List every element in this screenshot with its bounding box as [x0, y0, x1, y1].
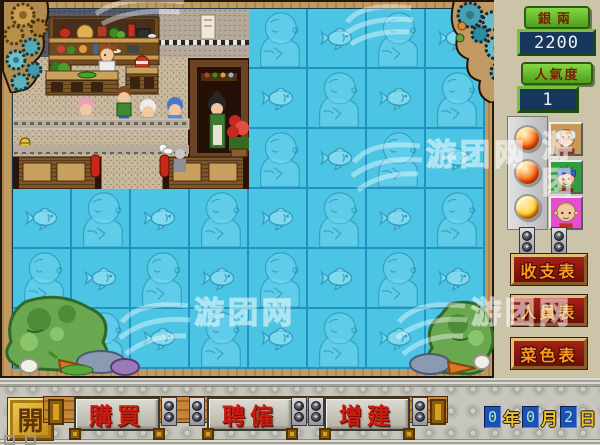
tile-grid — [12, 8, 484, 368]
map-tile-r5c2[interactable] — [72, 249, 131, 309]
map-frame — [0, 0, 494, 378]
popularity-value: 1 — [517, 86, 579, 113]
buy-button-label: 購買 — [89, 397, 145, 431]
map-tile-r6c5[interactable] — [249, 309, 308, 369]
connector-piece: ✦✦ — [308, 397, 324, 426]
expand-button[interactable]: 增建 — [324, 397, 410, 431]
map-tile-r1c8[interactable] — [426, 9, 485, 69]
game-screen: 銀兩 2200 人氣度 1 — [0, 0, 600, 445]
map-tile-r3c5[interactable] — [249, 129, 308, 189]
gold-corner — [202, 428, 214, 440]
gold-bracket — [48, 399, 64, 425]
map-tile-r4c7[interactable] — [367, 189, 426, 249]
map-tile-r6c8[interactable] — [426, 309, 485, 369]
money-label: 銀兩 — [524, 6, 590, 29]
map-tile-r4c8[interactable] — [426, 189, 485, 249]
map-tile-r6c2[interactable] — [72, 309, 131, 369]
map-tile-r4c1[interactable] — [13, 189, 72, 249]
staff-led-1[interactable] — [514, 125, 541, 152]
square-decoration — [25, 435, 36, 445]
sidebar-hud: 銀兩 2200 人氣度 1 — [494, 0, 600, 378]
map-tile-r6c7[interactable] — [367, 309, 426, 369]
map-tile-r1c6[interactable] — [308, 9, 367, 69]
map-tile-r3c8[interactable] — [426, 129, 485, 189]
date-year-value: 0 — [484, 406, 501, 428]
map-tile-r4c5[interactable] — [249, 189, 308, 249]
square-decoration — [4, 435, 15, 445]
buy-button[interactable]: 購買 — [74, 397, 160, 431]
date-year-unit: 年 — [503, 405, 520, 430]
connector-piece: ✦✦ — [161, 397, 177, 426]
staff-led-2[interactable] — [514, 159, 541, 186]
connector-piece: ✦✦ — [551, 227, 567, 256]
map-tile-r5c4[interactable] — [190, 249, 249, 309]
income-report-button[interactable]: 收支表 — [511, 254, 587, 285]
gold-bracket — [430, 399, 446, 425]
map-tile-r3c7[interactable] — [367, 129, 426, 189]
map-tile-r6c3[interactable] — [131, 309, 190, 369]
bottom-bar: 開 購買 ✦✦ ✦✦ 聘僱 ✦✦ ✦✦ 增建 ✦✦ 0 年 0 月 2 日 — [0, 378, 600, 445]
map-tile-r2c7[interactable] — [367, 69, 426, 129]
map-tile-r3c6[interactable] — [308, 129, 367, 189]
map-tile-r1c7[interactable] — [367, 9, 426, 69]
money-value: 2200 — [517, 29, 596, 56]
menu-report-button[interactable]: 菜色表 — [511, 338, 587, 369]
gold-corner — [153, 428, 165, 440]
date-day-value: 2 — [560, 406, 577, 428]
hire-button-label: 聘僱 — [222, 397, 278, 431]
map-tile-r1c5[interactable] — [249, 9, 308, 69]
map-tile-r4c3[interactable] — [131, 189, 190, 249]
connector-piece: ✦✦ — [412, 397, 428, 426]
personnel-report-button[interactable]: 人員表 — [511, 295, 587, 326]
date-day-unit: 日 — [579, 405, 596, 430]
map-tile-r4c4[interactable] — [190, 189, 249, 249]
staff-portrait-old-chef[interactable] — [549, 122, 583, 156]
hire-button[interactable]: 聘僱 — [207, 397, 293, 431]
date-month-value: 0 — [522, 406, 539, 428]
date-month-unit: 月 — [541, 405, 558, 430]
gold-corner — [286, 428, 298, 440]
connector-piece: ✦✦ — [291, 397, 307, 426]
restaurant-building[interactable] — [13, 9, 249, 189]
map-tile-r5c5[interactable] — [249, 249, 308, 309]
staff-led-panel — [507, 116, 548, 230]
staff-led-3[interactable] — [514, 194, 541, 221]
map-tile-r4c6[interactable] — [308, 189, 367, 249]
popularity-label: 人氣度 — [521, 62, 593, 85]
map-tile-r2c8[interactable] — [426, 69, 485, 129]
staff-portrait-bald-kid[interactable] — [549, 196, 583, 230]
map-tile-r4c2[interactable] — [72, 189, 131, 249]
map-tile-r6c1[interactable] — [13, 309, 72, 369]
map-tile-r5c7[interactable] — [367, 249, 426, 309]
map-tile-r5c1[interactable] — [13, 249, 72, 309]
gold-corner — [319, 428, 331, 440]
connector-piece: ✦✦ — [519, 227, 535, 256]
gold-corner — [69, 428, 81, 440]
ridge-decoration — [0, 378, 600, 387]
map-tile-r5c6[interactable] — [308, 249, 367, 309]
map-tile-r5c8[interactable] — [426, 249, 485, 309]
map-tile-r2c6[interactable] — [308, 69, 367, 129]
game-date-display: 0 年 0 月 2 日 — [484, 405, 596, 429]
ridge-decoration — [0, 439, 600, 445]
connector-piece: ✦✦ — [189, 397, 205, 426]
gold-corner — [403, 428, 415, 440]
staff-portrait-blue-hair-kid[interactable] — [549, 160, 583, 194]
map-tile-r2c5[interactable] — [249, 69, 308, 129]
expand-button-label: 增建 — [339, 397, 395, 431]
map-tile-r6c4[interactable] — [190, 309, 249, 369]
map-tile-r6c6[interactable] — [308, 309, 367, 369]
map-tile-r5c3[interactable] — [131, 249, 190, 309]
